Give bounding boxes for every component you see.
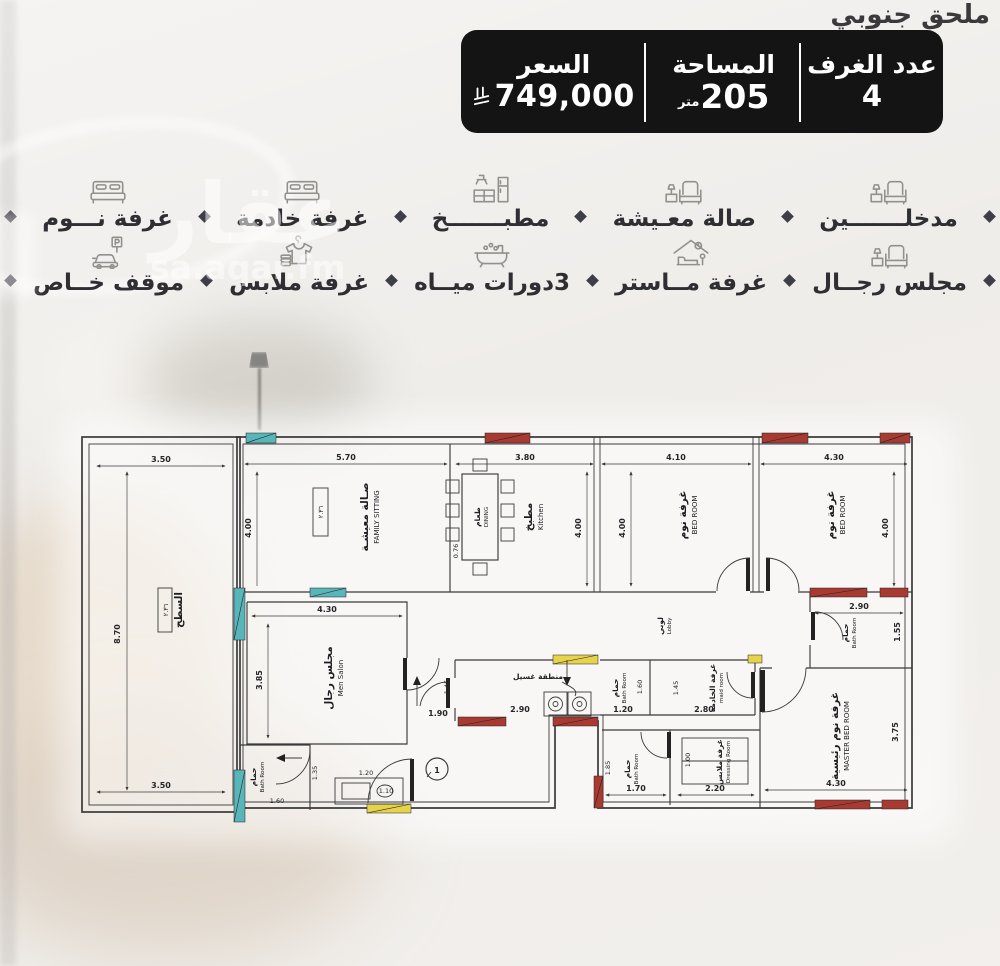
dimension-labels: 3.50 8.70 3.50 5.70 4.00 3.80 4.00 0.76 … [113,453,902,805]
svg-text:2.90: 2.90 [510,705,530,714]
svg-text:2.90: 2.90 [849,602,869,611]
info-bar: عدد الغرف 4 المساحة 205 متر السعر 749,00… [461,30,943,133]
svg-text:غرفة ملابس: غرفة ملابس [715,739,724,785]
teal-window [310,588,346,597]
room-dressing: غرفة ملابسDressing Room [715,739,732,785]
area-label: المساحة [672,52,775,77]
price-number: 749,000 [495,82,635,112]
rooms-value: 4 [862,82,882,111]
room-bedroom-1: غرفة نومBED ROOM [677,491,699,540]
feature-kitchen: مطبـــــــخ [432,171,550,232]
price-value: 749,000 [473,82,635,112]
rooms-label: عدد الغرف [807,52,937,77]
yellow-door [553,655,598,664]
teal-window [234,588,245,640]
svg-text:1.60: 1.60 [636,680,644,694]
svg-text:4.00: 4.00 [881,518,890,538]
svg-text:Dressing Room: Dressing Room [726,741,732,783]
yellow-door [748,655,762,663]
svg-text:1.55: 1.55 [893,622,902,642]
svg-text:5.70: 5.70 [336,453,356,462]
feature-label: مدخلـــــــين [819,206,958,232]
floor-plan: 1 3.50 8.70 3.50 5.70 [70,420,950,850]
feature-living-room: صالة معـيشة [613,171,756,232]
interior-walls [237,437,912,810]
teal-window [246,433,276,443]
bed-icon [281,171,323,205]
room-terrace: السطح [173,592,185,628]
svg-text:طعام: طعام [473,507,482,527]
svg-text:Lobby: Lobby [667,617,673,635]
svg-text:صـالة معيشـة: صـالة معيشـة [359,483,371,552]
diamond-separator [586,274,599,287]
svg-text:4.00: 4.00 [618,518,627,538]
watermark-fragment [0,212,36,298]
svg-text:حمام: حمام [249,768,258,787]
red-window [810,588,867,597]
feature-label: مطبـــــــخ [432,206,550,232]
price-cell: السعر 749,000 [461,30,646,133]
sofa-icon [868,171,910,205]
svg-text:1.35: 1.35 [311,766,319,780]
svg-text:FAMILY SITTING: FAMILY SITTING [373,490,381,543]
room-bath-small: حمامBath Room [249,762,266,793]
outer-walls [237,437,912,808]
area-number: 205 [700,82,769,112]
svg-text:1.45: 1.45 [672,681,680,695]
rooms-cell: عدد الغرف 4 [801,30,943,133]
diamond-separator [200,274,213,287]
red-window [815,800,870,809]
svg-text:غرفة نوم: غرفة نوم [825,491,837,540]
parking-icon [88,235,130,269]
red-window [458,717,506,726]
feature-label: صالة معـيشة [613,206,756,232]
svg-text:4.00: 4.00 [244,518,253,538]
svg-text:3.50: 3.50 [151,781,171,790]
diamond-separator [983,210,996,223]
red-window [880,588,908,597]
features-section: مدخلـــــــين صالة معـيشة مطبـــــــخ [6,171,994,296]
room-bath-bottom: حمامBath Room [623,754,640,785]
svg-text:1.85: 1.85 [604,761,612,775]
svg-text:4.30: 4.30 [317,605,337,614]
svg-text:Bath Room: Bath Room [622,673,628,704]
svg-text:1.45: 1.45 [443,680,451,694]
feature-men-majlis: مجلس رجــال [812,235,967,296]
svg-text:BED ROOM: BED ROOM [691,496,699,535]
room-men-salon: مجلس رجالMen Salon [323,646,345,710]
svg-text:حمام: حمام [623,760,632,779]
laundry-leader [562,682,576,696]
svg-text:حمام: حمام [611,679,620,698]
feature-maid-room: غرفة خادمة [236,171,368,232]
level-marker: ٢.٣٦ [158,588,172,632]
diamond-separator [385,274,398,287]
floor-lamp-shade [249,352,269,368]
svg-text:Bath Room: Bath Room [260,762,266,793]
svg-text:السطح: السطح [173,592,185,628]
feature-label: غرفة ملابس [229,270,369,296]
feature-master-room: غرفة مــاستر [615,235,767,296]
feature-bathrooms: 3دورات ميــاه [414,235,570,296]
area-value: 205 متر [678,82,769,112]
svg-text:1: 1 [434,766,440,775]
svg-text:مجلس رجال: مجلس رجال [323,646,335,710]
svg-text:BED ROOM: BED ROOM [839,496,847,535]
svg-text:Bath Room: Bath Room [852,618,858,649]
svg-text:1.10: 1.10 [379,787,393,795]
feature-dressing-room: غرفة ملابس [229,235,369,296]
red-window [762,433,808,443]
features-row-2: مجلس رجــال غرفة مــاستر [6,235,994,296]
listing-image: ملحق جنوبي عدد الغرف 4 المساحة 205 متر ا… [0,0,1000,966]
svg-text:لوبي: لوبي [656,617,665,635]
room-kitchen: مطبخKitchen [523,503,545,532]
room-bath-mid: حمامBath Room [611,673,628,704]
svg-text:MASTER BED ROOM: MASTER BED ROOM [843,701,851,771]
feature-label: 3دورات ميــاه [414,270,570,296]
terrace-walls [82,437,240,812]
svg-text:مطبخ: مطبخ [523,503,535,532]
area-cell: المساحة 205 متر [646,30,800,133]
feature-label: موقف خــاص [33,270,184,296]
feature-entrances: مدخلـــــــين [819,171,958,232]
diamond-separator [781,210,794,223]
bed-icon [87,171,129,205]
svg-text:maid room: maid room [719,673,725,703]
svg-text:DINING: DINING [484,507,490,527]
red-window [594,776,603,808]
area-unit: متر [678,95,699,111]
svg-text:1.90: 1.90 [428,709,448,718]
master-bed-icon [670,235,712,269]
sofa-icon [869,235,911,269]
svg-text:غرفة نوم رئيسية: غرفة نوم رئيسية [829,692,841,780]
clothes-icon [278,235,320,269]
svg-text:0.76: 0.76 [452,544,460,558]
key-marker: 1 [426,758,448,780]
feature-label: غرفة خادمة [236,206,368,232]
kitchen-icon [470,171,512,205]
red-window [485,433,530,443]
red-window [880,433,910,443]
page-title: ملحق جنوبي [830,0,990,30]
price-label: السعر [517,52,590,77]
diamond-separator [575,210,588,223]
diamond-separator [394,210,407,223]
sofa-icon [663,171,705,205]
feature-label: غرفة نـــوم [42,206,173,232]
feature-label: غرفة مــاستر [615,270,767,296]
feature-bedroom: غرفة نـــوم [42,171,173,232]
room-bedroom-2: غرفة نومBED ROOM [825,491,847,540]
svg-text:4.00: 4.00 [574,518,583,538]
svg-text:3.85: 3.85 [255,670,264,690]
svg-text:1.60: 1.60 [270,797,284,805]
laundry-label: منطقة غسيل [513,672,563,681]
features-row-1: مدخلـــــــين صالة معـيشة مطبـــــــخ [6,171,994,232]
svg-text:1.00: 1.00 [684,753,692,767]
svg-text:٢.٣٦: ٢.٣٦ [317,505,325,518]
feature-private-parking: موقف خــاص [33,235,184,296]
svg-text:8.70: 8.70 [113,624,122,644]
level-marker: ٢.٣٦ [313,488,328,536]
dimension-lines [97,464,907,795]
teal-window [234,770,245,822]
bathtub-icon [471,235,513,269]
svg-text:Bath Room: Bath Room [634,754,640,785]
room-dining: طعامDINING [473,507,490,527]
diamond-separator [783,274,796,287]
svg-text:3.80: 3.80 [515,453,535,462]
svg-text:1.70: 1.70 [626,784,646,793]
red-window [553,717,598,726]
svg-text:3.50: 3.50 [151,455,171,464]
room-lobby: لوبيLobby [656,617,673,635]
room-maid: غرفة الخادمةmaid room [708,664,725,713]
feature-label: مجلس رجــال [812,270,967,296]
red-window [882,800,908,809]
svg-text:1.20: 1.20 [359,769,373,777]
svg-text:غرفة نوم: غرفة نوم [677,491,689,540]
svg-text:Kitchen: Kitchen [537,504,545,530]
window-markers [234,433,910,822]
room-master-bedroom: غرفة نوم رئيسيةMASTER BED ROOM [829,692,851,780]
yellow-door [367,804,411,813]
svg-text:٢.٣٦: ٢.٣٦ [162,603,170,616]
svg-text:حمام: حمام [841,624,850,643]
svg-text:4.30: 4.30 [824,453,844,462]
diamond-separator [983,274,996,287]
washing-machines [544,692,591,716]
svg-text:1.20: 1.20 [613,705,633,714]
saudi-riyal-icon [473,86,491,107]
svg-text:3.75: 3.75 [891,722,900,742]
room-bath-right: حمامBath Room [841,618,858,649]
svg-text:4.10: 4.10 [666,453,686,462]
diamond-separator [198,210,211,223]
room-family-sitting: صـالة معيشـةFAMILY SITTING [359,483,381,552]
svg-text:غرفة الخادمة: غرفة الخادمة [708,664,717,713]
svg-text:Men Salon: Men Salon [337,660,345,696]
